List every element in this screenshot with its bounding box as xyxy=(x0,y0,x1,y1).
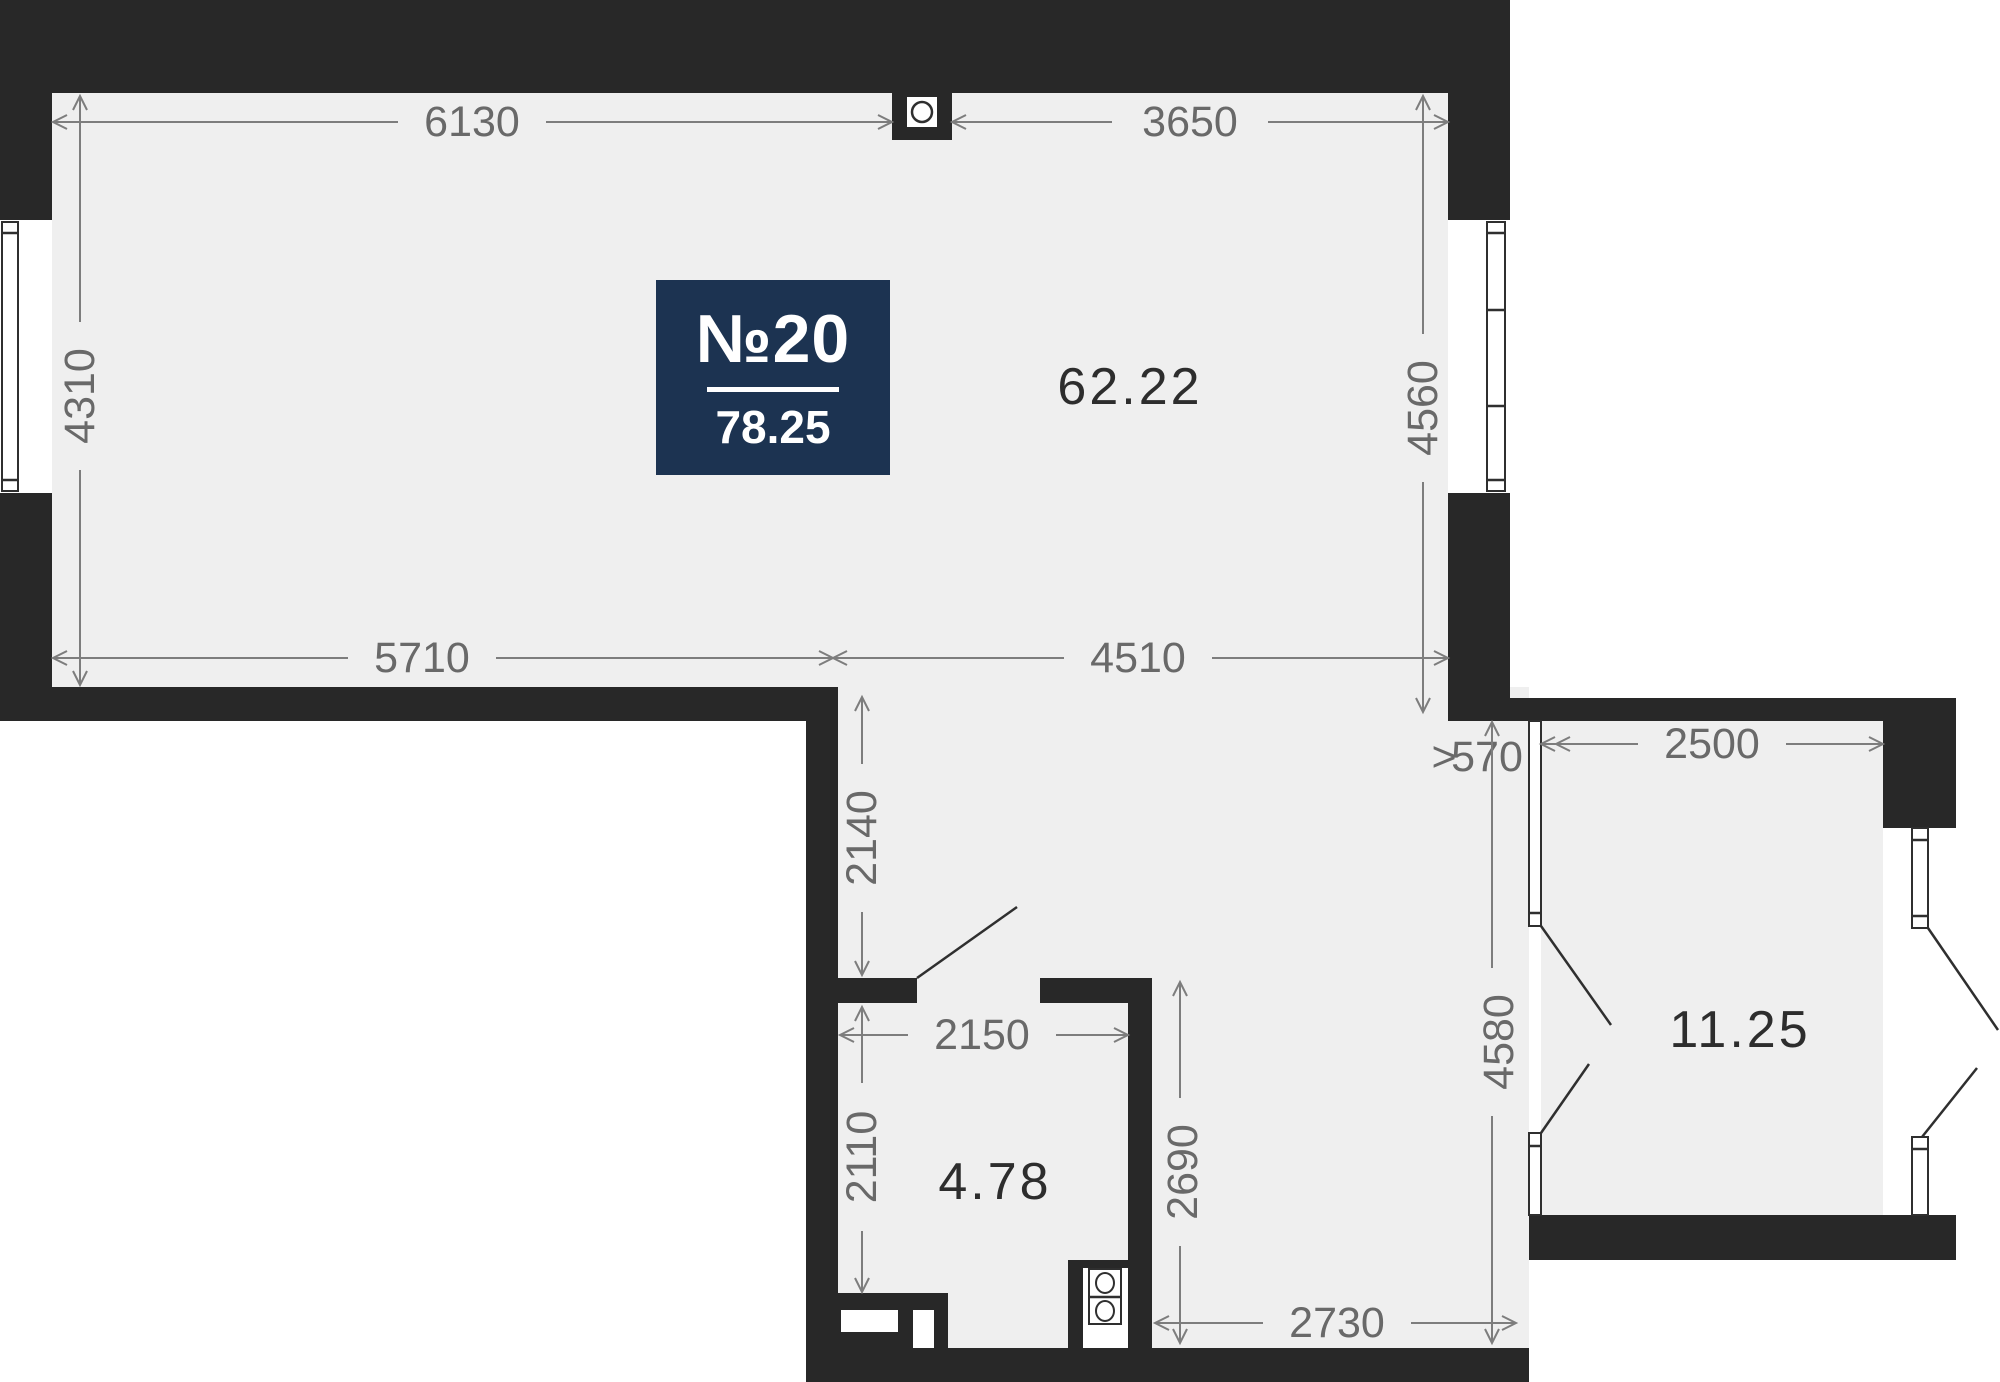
wall-top xyxy=(0,0,1510,93)
wall-bath-top-left xyxy=(838,978,917,1003)
room-area-bedroom: 11.25 xyxy=(1610,998,1870,1062)
dim-label: 6130 xyxy=(424,98,520,146)
dim-label: 4510 xyxy=(1090,634,1186,682)
wall-left-lower xyxy=(0,493,52,687)
opening-marker-horizontal xyxy=(841,1310,898,1332)
dim-label: 2500 xyxy=(1664,720,1760,768)
window-left xyxy=(0,220,52,493)
unit-badge: №20 78.25 xyxy=(656,280,890,475)
wall-bath-east xyxy=(1128,1003,1152,1260)
partition-bedroom-lower xyxy=(1529,1133,1541,1215)
dim-label: 2730 xyxy=(1289,1299,1385,1347)
wall-right-upper xyxy=(1448,93,1510,220)
wall-bedroom-top xyxy=(1510,698,1883,721)
bedroom-floor xyxy=(1541,721,1883,1215)
opening-marker-vertical xyxy=(913,1310,934,1348)
dim-label: 2150 xyxy=(934,1011,1030,1059)
dim-label: 4560 xyxy=(1399,360,1447,456)
balcony-window-swing-lower xyxy=(1922,1068,1977,1137)
room-area-living: 62.22 xyxy=(1000,355,1260,419)
unit-number: №20 xyxy=(696,305,850,373)
wall-left-upper xyxy=(0,93,52,220)
dim-label: 5710 xyxy=(374,634,470,682)
wall-hall-west xyxy=(806,721,838,1382)
wall-bath-top-right xyxy=(1040,978,1152,1003)
unit-total-area: 78.25 xyxy=(715,404,830,450)
dim-gap: > 570 xyxy=(1431,733,1522,781)
dim-label: 4310 xyxy=(56,348,104,444)
window-bedroom-east-upper xyxy=(1912,828,1928,928)
badge-divider xyxy=(707,387,839,392)
room-area-bathroom: 4.78 xyxy=(865,1150,1125,1214)
stove-icon xyxy=(1089,1269,1121,1324)
wall-bedroom-bottom xyxy=(1529,1215,1956,1260)
wall-right-lower xyxy=(1448,493,1510,721)
dim-label: 2690 xyxy=(1159,1124,1207,1220)
partition-bedroom-upper xyxy=(1529,721,1541,926)
wall-bedroom-ne-block xyxy=(1883,698,1956,828)
floor-plan: 6130 3650 4310 4560 xyxy=(0,0,2000,1382)
wall-bottom-living xyxy=(0,687,838,721)
ventilation-icon xyxy=(907,97,937,127)
dim-label: 570 xyxy=(1451,733,1523,781)
balcony-window-swing-upper xyxy=(1928,928,1998,1030)
dim-label: 2140 xyxy=(838,790,886,886)
dim-label: 4580 xyxy=(1475,994,1523,1090)
window-bedroom-east-lower xyxy=(1912,1137,1928,1215)
dim-label: 3650 xyxy=(1142,98,1238,146)
window-right xyxy=(1448,220,1510,493)
